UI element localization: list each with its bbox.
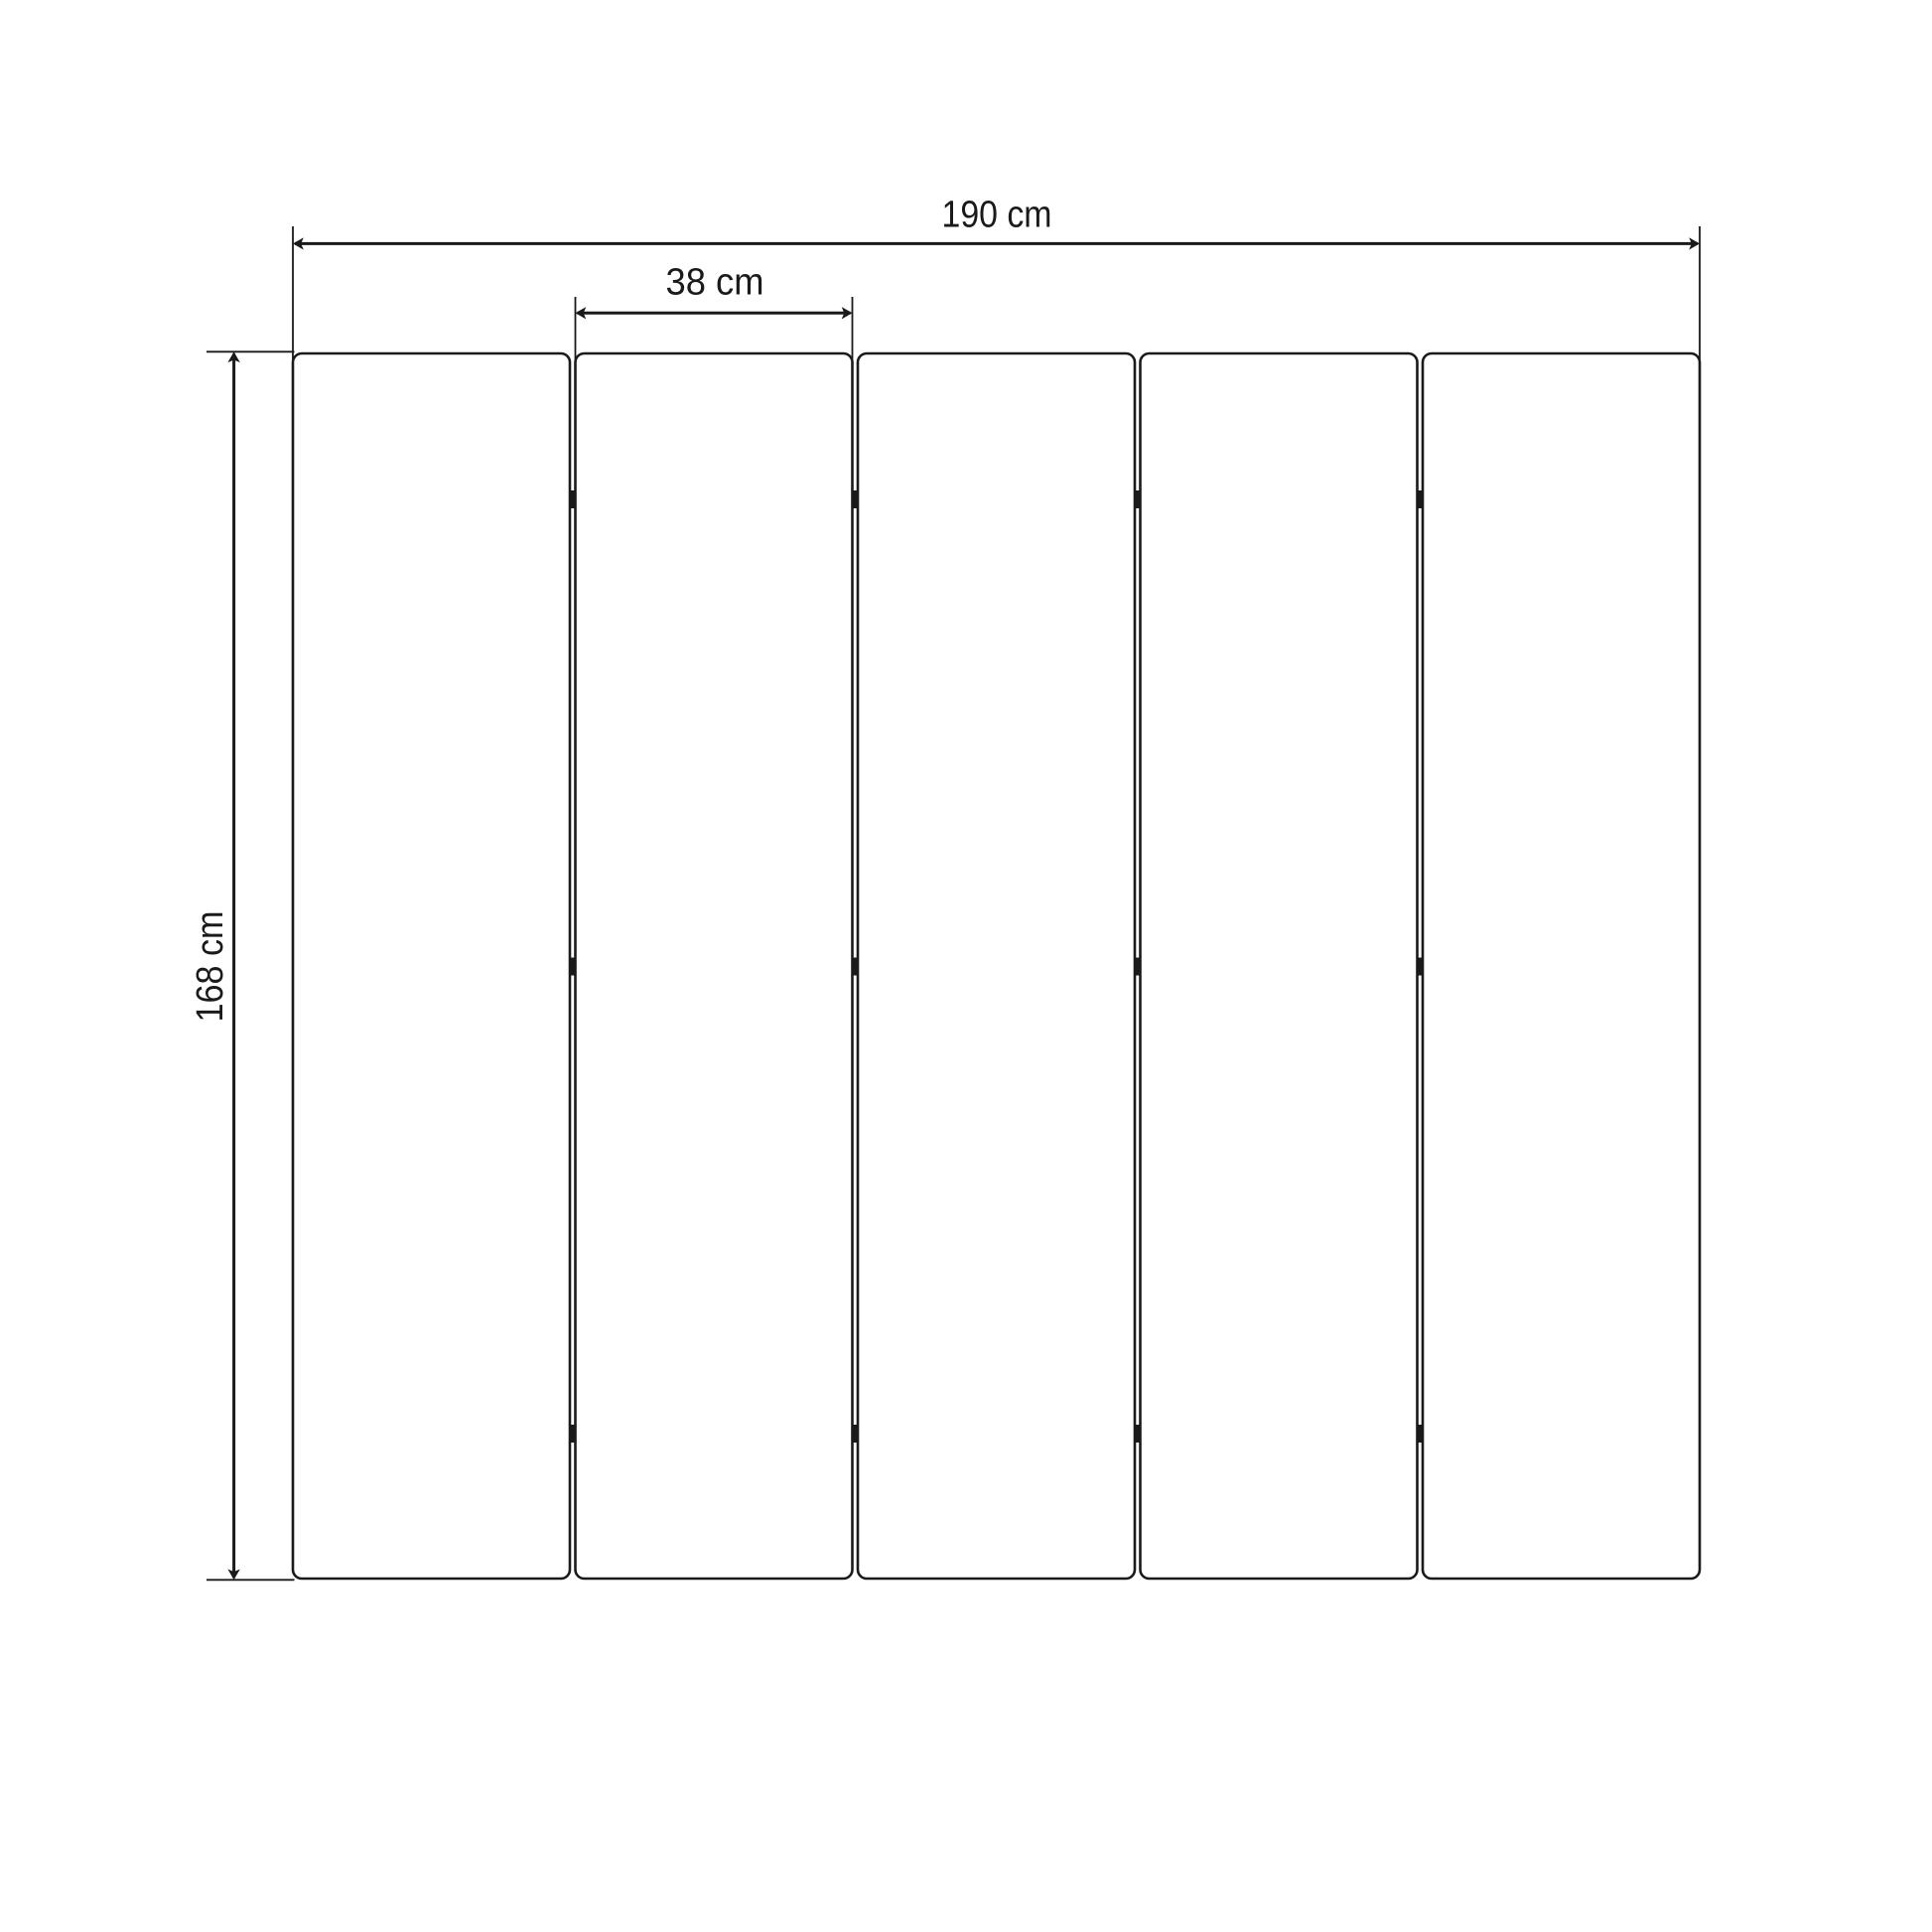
svg-text:190 cm: 190 cm [942,195,1052,236]
svg-text:168 cm: 168 cm [190,911,231,1023]
svg-text:38 cm: 38 cm [666,262,764,304]
